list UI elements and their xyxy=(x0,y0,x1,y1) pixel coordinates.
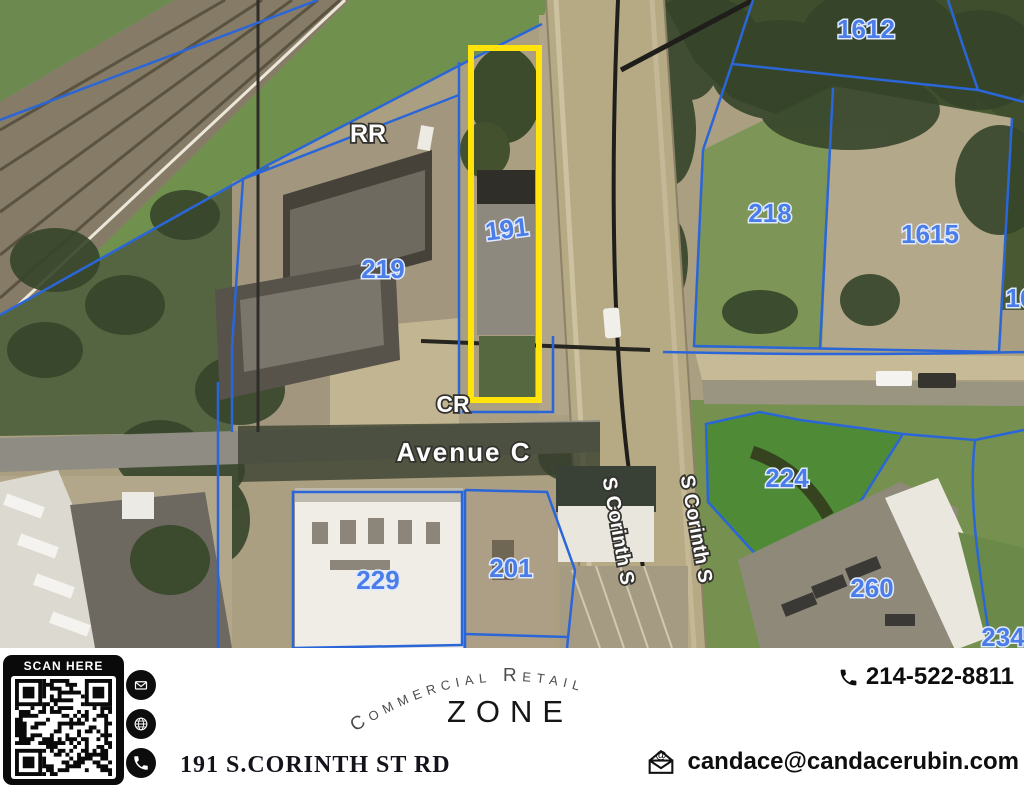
parcel-label: 218 xyxy=(748,198,791,228)
contact-footer: SCAN HERE 191 S.COR xyxy=(0,648,1024,791)
parcel-label: 219 xyxy=(361,254,404,284)
street-label-cr: CR xyxy=(436,391,470,417)
zone-label: ZONE xyxy=(330,694,690,730)
globe-icon[interactable] xyxy=(126,709,156,739)
parcel-label: 260 xyxy=(850,573,893,603)
street-label-rr: RR xyxy=(350,120,386,148)
parcel-label: 1612 xyxy=(837,14,895,44)
scan-here-label: SCAN HERE xyxy=(3,655,124,675)
envelope-icon[interactable] xyxy=(126,670,156,700)
parcel-label: 1615 xyxy=(901,219,959,249)
parcel-label: 191 xyxy=(484,211,531,246)
email-at-icon: @ xyxy=(644,746,678,777)
parcel-label: 229 xyxy=(356,565,399,595)
parcel-label: 224 xyxy=(765,463,809,493)
street-label-avenue-c: Avenue C xyxy=(397,437,532,467)
parcel-label: 16 xyxy=(1006,283,1024,313)
phone-contact[interactable]: 214-522-8811 xyxy=(838,663,1014,691)
real-estate-flyer: 1612 218 1615 16 219 191 224 260 234 229… xyxy=(0,0,1024,791)
parcel-label: 201 xyxy=(489,553,532,583)
qr-code[interactable]: SCAN HERE xyxy=(3,655,124,785)
satellite-parcel-map: 1612 218 1615 16 219 191 224 260 234 229… xyxy=(0,0,1024,648)
parcel-label: 234 xyxy=(981,622,1024,648)
phone-icon[interactable] xyxy=(126,748,156,778)
svg-text:@: @ xyxy=(656,750,667,762)
email-contact[interactable]: @ candace@candacerubin.com xyxy=(644,746,1019,777)
qr-pattern xyxy=(11,676,116,779)
email-address[interactable]: candace@candacerubin.com xyxy=(687,748,1019,776)
buildings-bottom-left xyxy=(0,470,232,648)
phone-handset-icon xyxy=(838,667,859,688)
phone-number[interactable]: 214-522-8811 xyxy=(866,663,1014,691)
property-address: 191 S.CORINTH ST RD xyxy=(180,752,451,779)
